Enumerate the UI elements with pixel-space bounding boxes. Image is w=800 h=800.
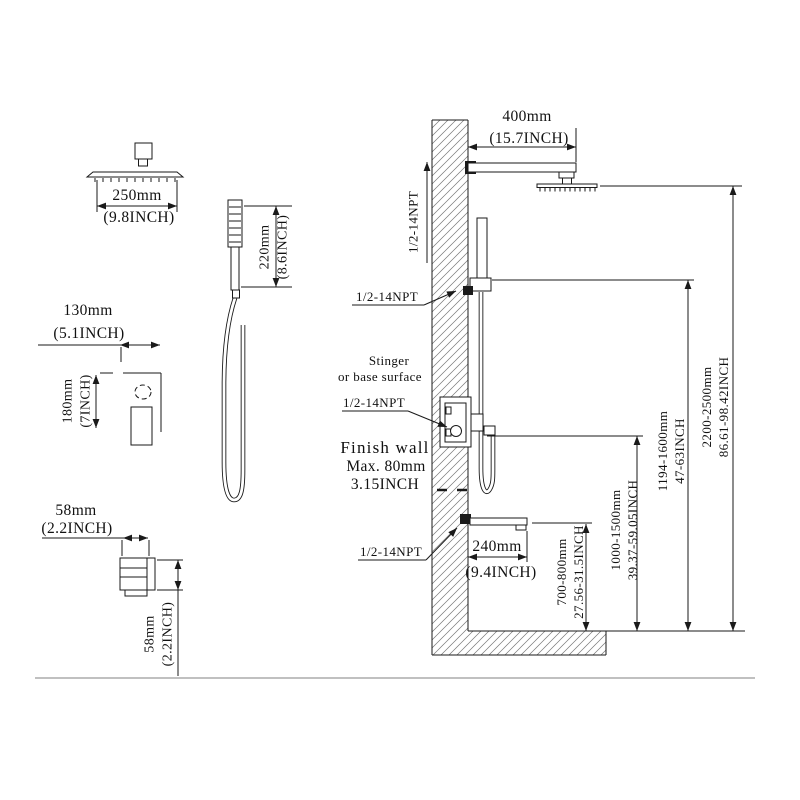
valve-width-mm: 130mm bbox=[63, 302, 112, 320]
height-dim-slidebar: 1194-1600mm 47-63INCH bbox=[654, 411, 688, 491]
height-mm-text: 1194-1600mm bbox=[654, 411, 671, 491]
npt-arm-label: 1/2-14NPT bbox=[404, 191, 421, 253]
height-mm-text: 700-800mm bbox=[553, 525, 570, 619]
height-dim-valve: 1000-1500mm 39.37-59.05INCH bbox=[607, 480, 641, 581]
valve-width-in: (5.1INCH) bbox=[53, 325, 124, 343]
height-inch-text: 86.61-98.42INCH bbox=[715, 357, 732, 458]
spout-reach-mm: 240mm bbox=[472, 538, 521, 556]
spout-height-dim: 58mm (2.2INCH) bbox=[142, 602, 179, 667]
height-mm-text: 2200-2500mm bbox=[698, 357, 715, 458]
arm-length-mm: 400mm bbox=[502, 108, 551, 126]
valve-height-dim: 180mm (7INCH) bbox=[60, 374, 97, 427]
surface-note-line1: Stinger bbox=[369, 353, 409, 369]
hand-shower-height-dim: 220mm (8.6INCH) bbox=[257, 215, 294, 280]
shower-head-width-in: (9.8INCH) bbox=[103, 209, 174, 227]
spout-wall-connector bbox=[460, 514, 471, 524]
height-inch-text: 47-63INCH bbox=[671, 411, 688, 491]
height-dim-spout: 700-800mm 27.56-31.5INCH bbox=[553, 525, 587, 619]
valve-component bbox=[38, 345, 161, 445]
height-inch-text: 27.56-31.5INCH bbox=[570, 525, 587, 619]
surface-note-line2: or base surface bbox=[338, 369, 422, 385]
npt-valve-label: 1/2-14NPT bbox=[343, 395, 405, 411]
shower-head-width-mm: 250mm bbox=[112, 187, 161, 205]
spout-height-in: (2.2INCH) bbox=[160, 602, 178, 667]
shower-dimension-diagram: 250mm (9.8INCH) 220mm (8.6INCH) 130mm (5… bbox=[0, 0, 800, 800]
npt-hand-shower-label: 1/2-14NPT bbox=[356, 289, 418, 305]
spout-height-mm: 58mm bbox=[142, 602, 160, 667]
spout-reach-in: (9.4INCH) bbox=[465, 564, 536, 582]
valve-height-mm: 180mm bbox=[60, 374, 78, 427]
finish-wall-line2: Max. 80mm bbox=[346, 458, 425, 476]
hand-shower-supply-connector bbox=[463, 286, 473, 295]
finish-wall-line3: 3.15INCH bbox=[351, 476, 419, 494]
spout-width-in: (2.2INCH) bbox=[41, 520, 112, 538]
finish-wall-line1: Finish wall bbox=[340, 438, 429, 458]
height-dim-showerhead: 2200-2500mm 86.61-98.42INCH bbox=[698, 357, 732, 458]
hand-shower-height-in: (8.6INCH) bbox=[275, 215, 293, 280]
height-inch-text: 39.37-59.05INCH bbox=[624, 480, 641, 581]
arm-length-in: (15.7INCH) bbox=[489, 130, 568, 148]
height-mm-text: 1000-1500mm bbox=[607, 480, 624, 581]
hand-shower-height-mm: 220mm bbox=[257, 215, 275, 280]
valve-height-in: (7INCH) bbox=[78, 374, 96, 427]
spout-width-mm: 58mm bbox=[55, 502, 96, 520]
npt-spout-label: 1/2-14NPT bbox=[360, 544, 422, 560]
